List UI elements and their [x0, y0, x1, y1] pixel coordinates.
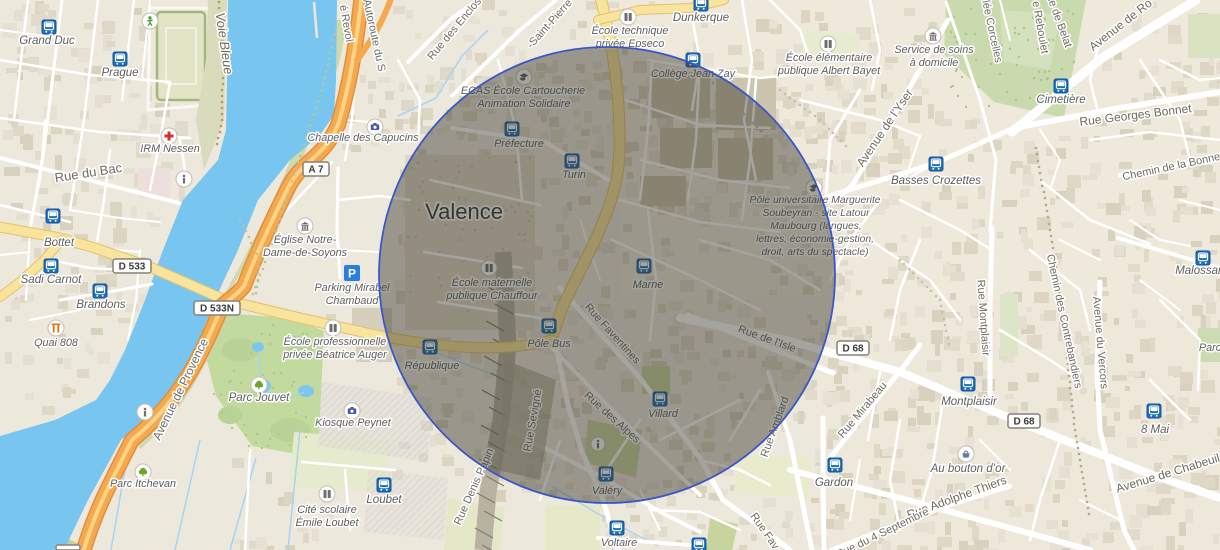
svg-text:Quai 808: Quai 808 [34, 337, 78, 349]
svg-text:Dunkerque: Dunkerque [673, 12, 729, 24]
svg-text:Cimetière: Cimetière [1036, 94, 1085, 106]
svg-text:Sadi Carnot: Sadi Carnot [21, 274, 83, 286]
svg-text:École technique: École technique [592, 24, 669, 37]
svg-text:Parc Jouvet: Parc Jouvet [229, 392, 291, 404]
svg-text:Montplaisir: Montplaisir [941, 396, 998, 408]
svg-text:A 7: A 7 [308, 165, 324, 176]
svg-text:École professionnelle: École professionnelle [284, 335, 387, 348]
svg-text:Malossane: Malossane [1175, 265, 1220, 277]
svg-text:8 Mai: 8 Mai [1141, 424, 1170, 436]
svg-text:Brandons: Brandons [76, 299, 125, 311]
svg-text:Parc: Parc [1199, 342, 1220, 354]
svg-text:École élémentaire: École élémentaire [786, 51, 872, 64]
svg-text:Loubet: Loubet [366, 494, 402, 506]
svg-text:P: P [348, 267, 356, 281]
svg-text:Dame-de-Soyons: Dame-de-Soyons [263, 247, 348, 259]
svg-text:Église Notre-: Église Notre- [274, 233, 337, 246]
svg-text:D 533: D 533 [119, 262, 146, 273]
svg-text:Voltaire: Voltaire [601, 537, 637, 549]
svg-text:Gardon: Gardon [815, 477, 853, 489]
svg-text:Bottet: Bottet [44, 237, 75, 249]
svg-text:publique Albert Bayet: publique Albert Bayet [777, 65, 881, 77]
svg-text:Grand Duc: Grand Duc [19, 35, 75, 47]
svg-text:D 68: D 68 [1013, 417, 1035, 428]
svg-text:Service de soins: Service de soins [894, 44, 974, 56]
svg-text:Cité scolaire: Cité scolaire [297, 504, 356, 516]
svg-text:Parc Itchevan: Parc Itchevan [110, 478, 176, 490]
svg-text:à domicile: à domicile [910, 57, 959, 69]
svg-text:Chapelle des Capucins: Chapelle des Capucins [307, 132, 419, 144]
svg-text:Chambaud: Chambaud [326, 295, 380, 307]
svg-text:Kiosque Peynet: Kiosque Peynet [315, 417, 392, 429]
svg-text:Émile Loubet: Émile Loubet [295, 516, 359, 529]
svg-text:IRM Nessen: IRM Nessen [140, 143, 199, 155]
svg-text:D 533N: D 533N [200, 304, 234, 315]
svg-text:Au bouton d’or: Au bouton d’or [930, 463, 1007, 475]
svg-text:Prague: Prague [101, 67, 138, 79]
svg-text:privée Béatrice Auger: privée Béatrice Auger [282, 349, 387, 361]
svg-text:D 68: D 68 [842, 344, 864, 355]
svg-text:Basses Crozettes: Basses Crozettes [891, 175, 981, 187]
